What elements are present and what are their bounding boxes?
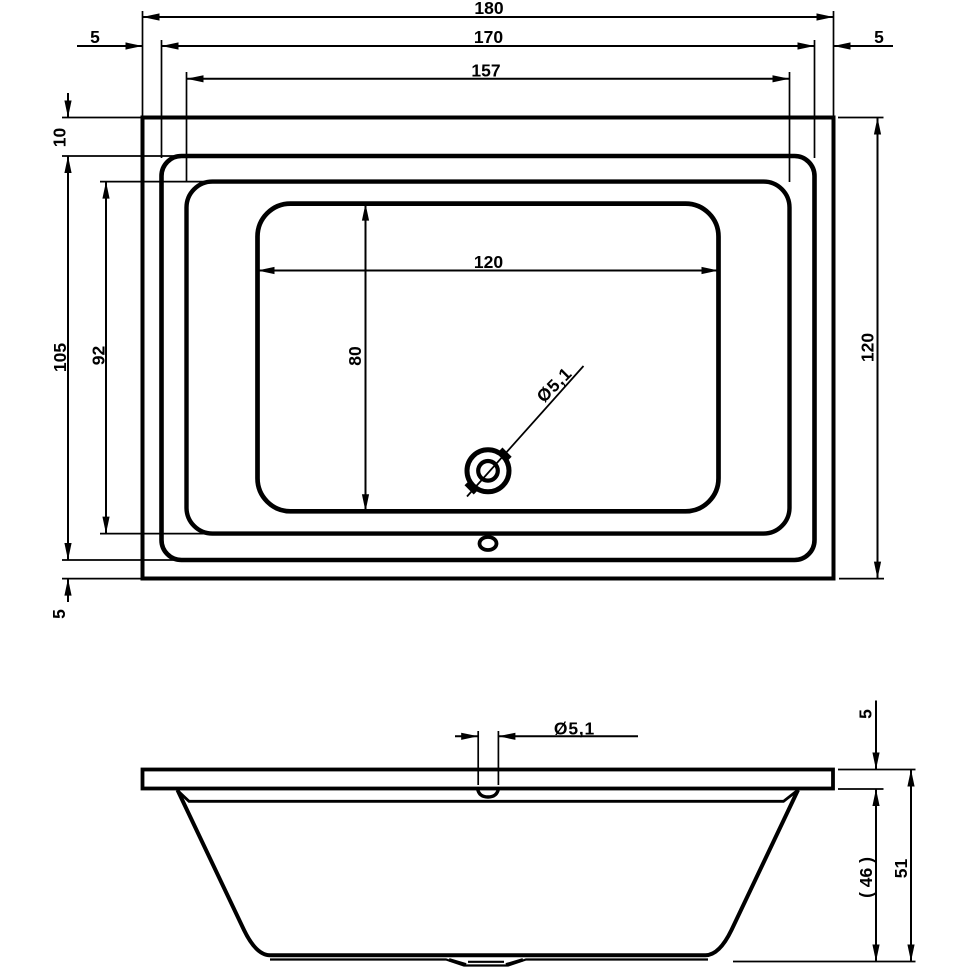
svg-text:120: 120 <box>474 252 503 272</box>
svg-text:5: 5 <box>874 27 884 47</box>
svg-text:80: 80 <box>345 346 365 366</box>
svg-text:120: 120 <box>857 333 877 362</box>
svg-text:180: 180 <box>474 0 503 18</box>
svg-text:170: 170 <box>474 27 503 47</box>
svg-text:51: 51 <box>891 859 911 879</box>
svg-text:157: 157 <box>471 61 500 81</box>
svg-text:105: 105 <box>50 343 70 372</box>
svg-text:5: 5 <box>90 27 100 47</box>
svg-text:10: 10 <box>49 128 69 148</box>
svg-text:92: 92 <box>88 346 108 366</box>
svg-text:5: 5 <box>49 609 69 619</box>
svg-text:5: 5 <box>855 709 875 719</box>
svg-text:Ø5,1: Ø5,1 <box>554 719 595 739</box>
svg-text:( 46 ): ( 46 ) <box>856 857 876 898</box>
